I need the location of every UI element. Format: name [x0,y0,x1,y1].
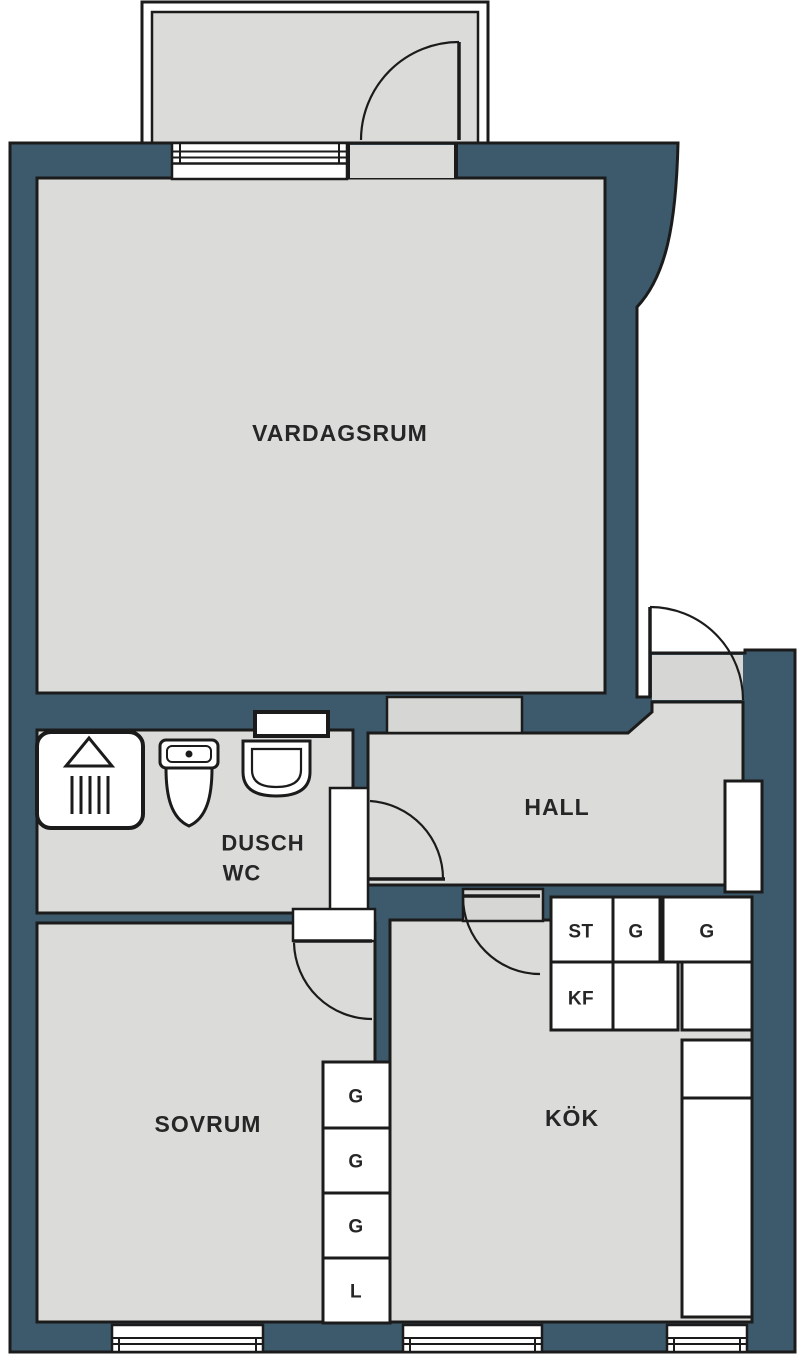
kitchen-counter-1 [682,962,752,1030]
shower-icon [37,732,143,828]
label-closet-g2: G [348,1152,363,1173]
label-unit-g1: G [628,922,643,943]
balcony-door-jamb-right [454,143,458,179]
balcony [142,2,488,143]
label-wc: WC [223,861,262,886]
kitchen-counter-3 [682,1098,752,1317]
floorplan-svg: VARDAGSRUM HALL DUSCH WC SOVRUM KÖK ST G… [0,0,800,1356]
passage-vardagsrum-hall [387,697,522,733]
kitchen-counter-2 [682,1040,752,1098]
window-bedroom-bottom [112,1325,263,1352]
bedroom-door-opening [293,909,375,941]
entry-door-opening [652,655,743,700]
sink-icon [243,741,310,796]
label-unit-g2: G [699,922,714,943]
floorplan-page: VARDAGSRUM HALL DUSCH WC SOVRUM KÖK ST G… [0,0,800,1356]
window-hall [725,781,762,892]
window-kitchen-bottom [403,1325,542,1352]
label-sovrum: SOVRUM [155,1111,262,1137]
label-dusch: DUSCH [221,831,304,856]
kitchen-door-opening [463,889,543,921]
label-vardagsrum: VARDAGSRUM [252,420,428,446]
label-closet-g3: G [348,1217,363,1238]
label-closet-l: L [350,1282,362,1303]
label-closet-g1: G [348,1087,363,1108]
kitchen-unit-blank [613,962,678,1030]
label-kok: KÖK [545,1105,599,1131]
label-unit-kf: KF [568,989,594,1010]
window-right-bottom [667,1325,747,1352]
balcony-floor [152,12,478,143]
bathroom-wall-cabinet [255,712,328,736]
bathroom-door-opening [330,788,368,915]
label-hall: HALL [524,794,589,820]
window-top [172,143,347,179]
label-unit-st: ST [568,922,593,943]
balcony-door-opening [349,145,455,178]
